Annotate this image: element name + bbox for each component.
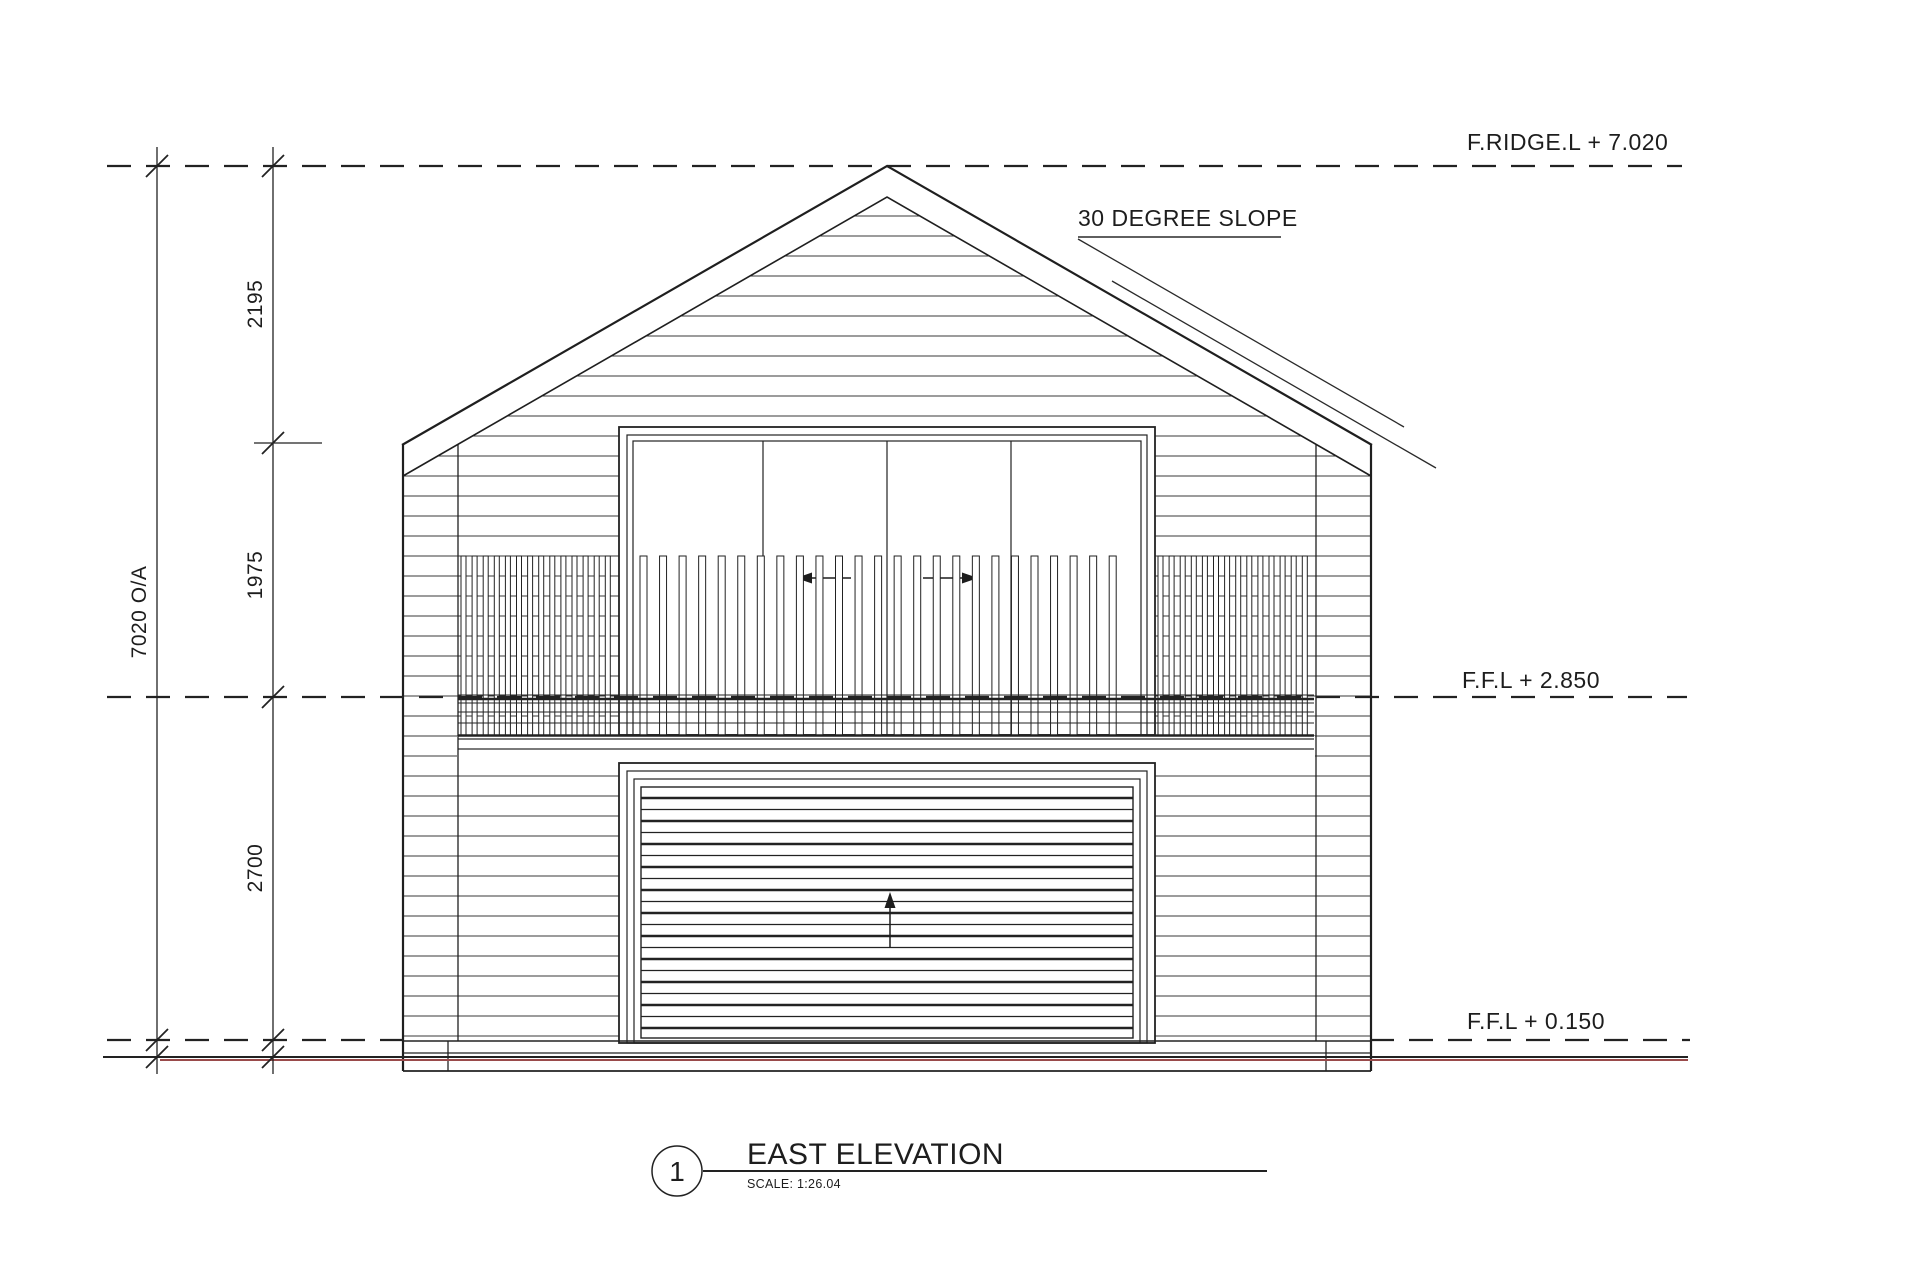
drawing-number: 1 <box>669 1156 685 1187</box>
drawing-scale: SCALE: 1:26.04 <box>747 1177 841 1191</box>
ground-floor-level-label: F.F.L + 0.150 <box>1467 1008 1605 1034</box>
dimension-lines <box>146 147 322 1074</box>
dim-overall: 7020 O/A <box>128 566 151 659</box>
elevation-drawing: F.RIDGE.L + 7.020 F.F.L + 2.850 F.F.L + … <box>0 0 1920 1279</box>
upper-floor-level-label: F.F.L + 2.850 <box>1462 667 1600 693</box>
garage-door-slats <box>641 798 1133 1028</box>
title-block: 1 EAST ELEVATION SCALE: 1:26.04 <box>652 1138 1267 1196</box>
roof-slope-annotation: 30 DEGREE SLOPE <box>1078 205 1298 231</box>
dim-gable: 2195 <box>244 280 267 329</box>
dim-lower: 2700 <box>244 844 267 893</box>
drawing-title: EAST ELEVATION <box>747 1138 1004 1171</box>
dim-upper: 1975 <box>244 551 267 600</box>
ridge-level-label: F.RIDGE.L + 7.020 <box>1467 129 1668 155</box>
